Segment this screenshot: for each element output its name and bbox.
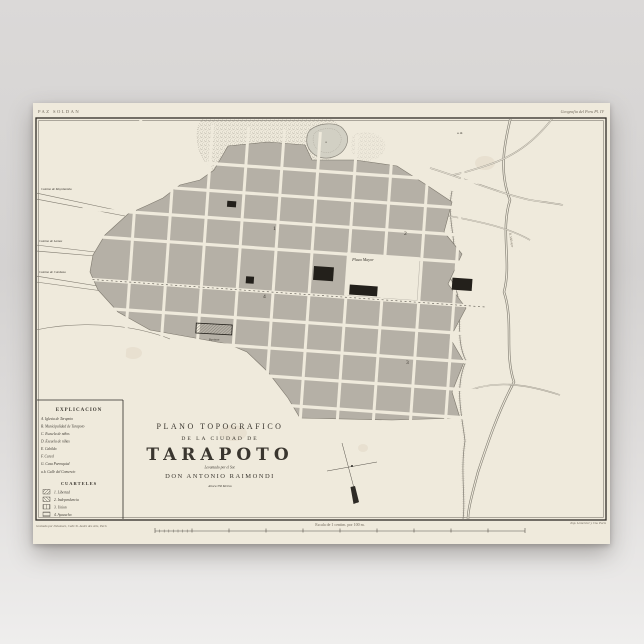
legend-item: E. Cabildo bbox=[40, 447, 57, 451]
cuarteles-swatches bbox=[43, 490, 50, 517]
legend-item: B. Municipalidad de Tarapoto bbox=[41, 425, 85, 429]
city-grid: Panteon bbox=[68, 116, 503, 441]
ne-note-label: a. R. bbox=[457, 131, 463, 135]
cuartel-item: 2. Independencia bbox=[54, 498, 79, 502]
legend: EXPLICACION A. Iglesia de Tarapoto B. Mu… bbox=[37, 400, 124, 520]
panteon bbox=[196, 323, 232, 335]
legend-item: F. Carcel bbox=[40, 455, 54, 459]
product-background: PAZ SOLDAN Geografia del Peru Pl. IV a bbox=[0, 0, 644, 644]
district-number-3: 3 bbox=[406, 360, 409, 366]
panteon-label: Panteon bbox=[208, 338, 220, 342]
scale-bar: Escala de 1 centim. por 100 m. bbox=[155, 522, 525, 533]
imprint-right: Imp. Lemercier y Cia. Paris bbox=[569, 521, 606, 525]
cuartel-item: 1. Libertad bbox=[54, 491, 70, 495]
compass-icon bbox=[327, 443, 377, 504]
title-byline2: DON ANTONIO RAIMONDI bbox=[165, 473, 275, 480]
road-label-lamas: Camino de Lamas bbox=[39, 239, 63, 243]
title-note: Altura 356 Metros bbox=[207, 484, 232, 488]
series-label: PAZ SOLDAN bbox=[38, 109, 80, 114]
title-line1: PLANO TOPOGRAFICO bbox=[157, 422, 284, 431]
map-artwork: PAZ SOLDAN Geografia del Peru Pl. IV a bbox=[33, 103, 610, 544]
district-number-4: 4 bbox=[263, 294, 266, 300]
road-label-moyobamba: Camino de Moyobamba bbox=[41, 187, 72, 191]
title-line2: DE LA CIUDAD DE bbox=[181, 436, 258, 442]
district-number-1: 1 bbox=[273, 226, 276, 232]
legend-cuarteles-title: CUARTELES bbox=[61, 481, 97, 486]
river-label: R. Shilcayo bbox=[508, 231, 515, 247]
imprint-left: Grabado por Delamare, Calle St. Andre de… bbox=[36, 524, 108, 529]
cuartel-item: 3. Union bbox=[54, 506, 67, 510]
cuartel-item: 4. Ayacucho bbox=[54, 513, 72, 517]
title-byline1: Levantado por el Sor. bbox=[204, 466, 236, 470]
scale-caption: Escala de 1 centim. por 100 m. bbox=[315, 522, 365, 527]
plate-label: Geografia del Peru Pl. IV bbox=[561, 109, 605, 114]
legend-item: C. Escuela de niños bbox=[41, 432, 70, 436]
legend-title: EXPLICACION bbox=[56, 408, 103, 413]
title-city: TARAPOTO bbox=[146, 445, 293, 465]
pond: a bbox=[307, 124, 348, 158]
poster-sheet: PAZ SOLDAN Geografia del Peru Pl. IV a bbox=[33, 103, 610, 544]
legend-item: A. Iglesia de Tarapoto bbox=[40, 417, 73, 421]
road-label-cumbasa: Camino de Cumbasa bbox=[39, 270, 66, 274]
plaza-mayor-label: Plaza Mayor bbox=[351, 257, 374, 262]
river-path: R. Shilcayo bbox=[468, 112, 515, 519]
legend-item: D. Escuela de niñas bbox=[40, 440, 70, 444]
legend-item: G. Casa Parroquial bbox=[41, 462, 70, 466]
district-number-2: 2 bbox=[404, 231, 407, 237]
legend-street-note: a.b. Calle del Comercio bbox=[41, 470, 76, 474]
